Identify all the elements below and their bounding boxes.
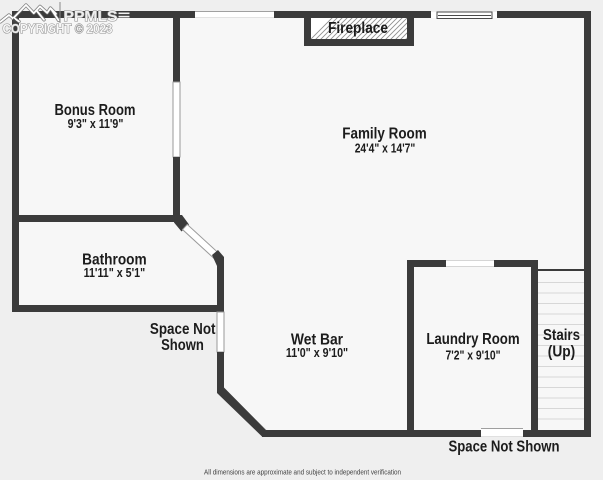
- svg-text:7'2" x 9'10": 7'2" x 9'10": [446, 349, 501, 363]
- svg-text:(Up): (Up): [548, 344, 576, 361]
- svg-text:24'4" x 14'7": 24'4" x 14'7": [355, 142, 416, 156]
- svg-text:Space Not Shown: Space Not Shown: [449, 439, 560, 456]
- svg-text:Fireplace: Fireplace: [328, 20, 388, 37]
- svg-text:COPYRIGHT © 2023: COPYRIGHT © 2023: [3, 21, 113, 36]
- svg-text:Stairs: Stairs: [543, 327, 580, 344]
- svg-text:11'11" x 5'1": 11'11" x 5'1": [84, 266, 146, 280]
- svg-text:9'3" x 11'9": 9'3" x 11'9": [68, 117, 124, 131]
- svg-text:Space Not: Space Not: [150, 321, 216, 338]
- svg-text:Family Room: Family Room: [342, 126, 427, 143]
- svg-text:11'0" x 9'10": 11'0" x 9'10": [286, 346, 348, 360]
- svg-text:Shown: Shown: [161, 337, 204, 354]
- svg-text:All dimensions are approximate: All dimensions are approximate and subje…: [204, 468, 401, 477]
- svg-text:Laundry Room: Laundry Room: [426, 331, 519, 348]
